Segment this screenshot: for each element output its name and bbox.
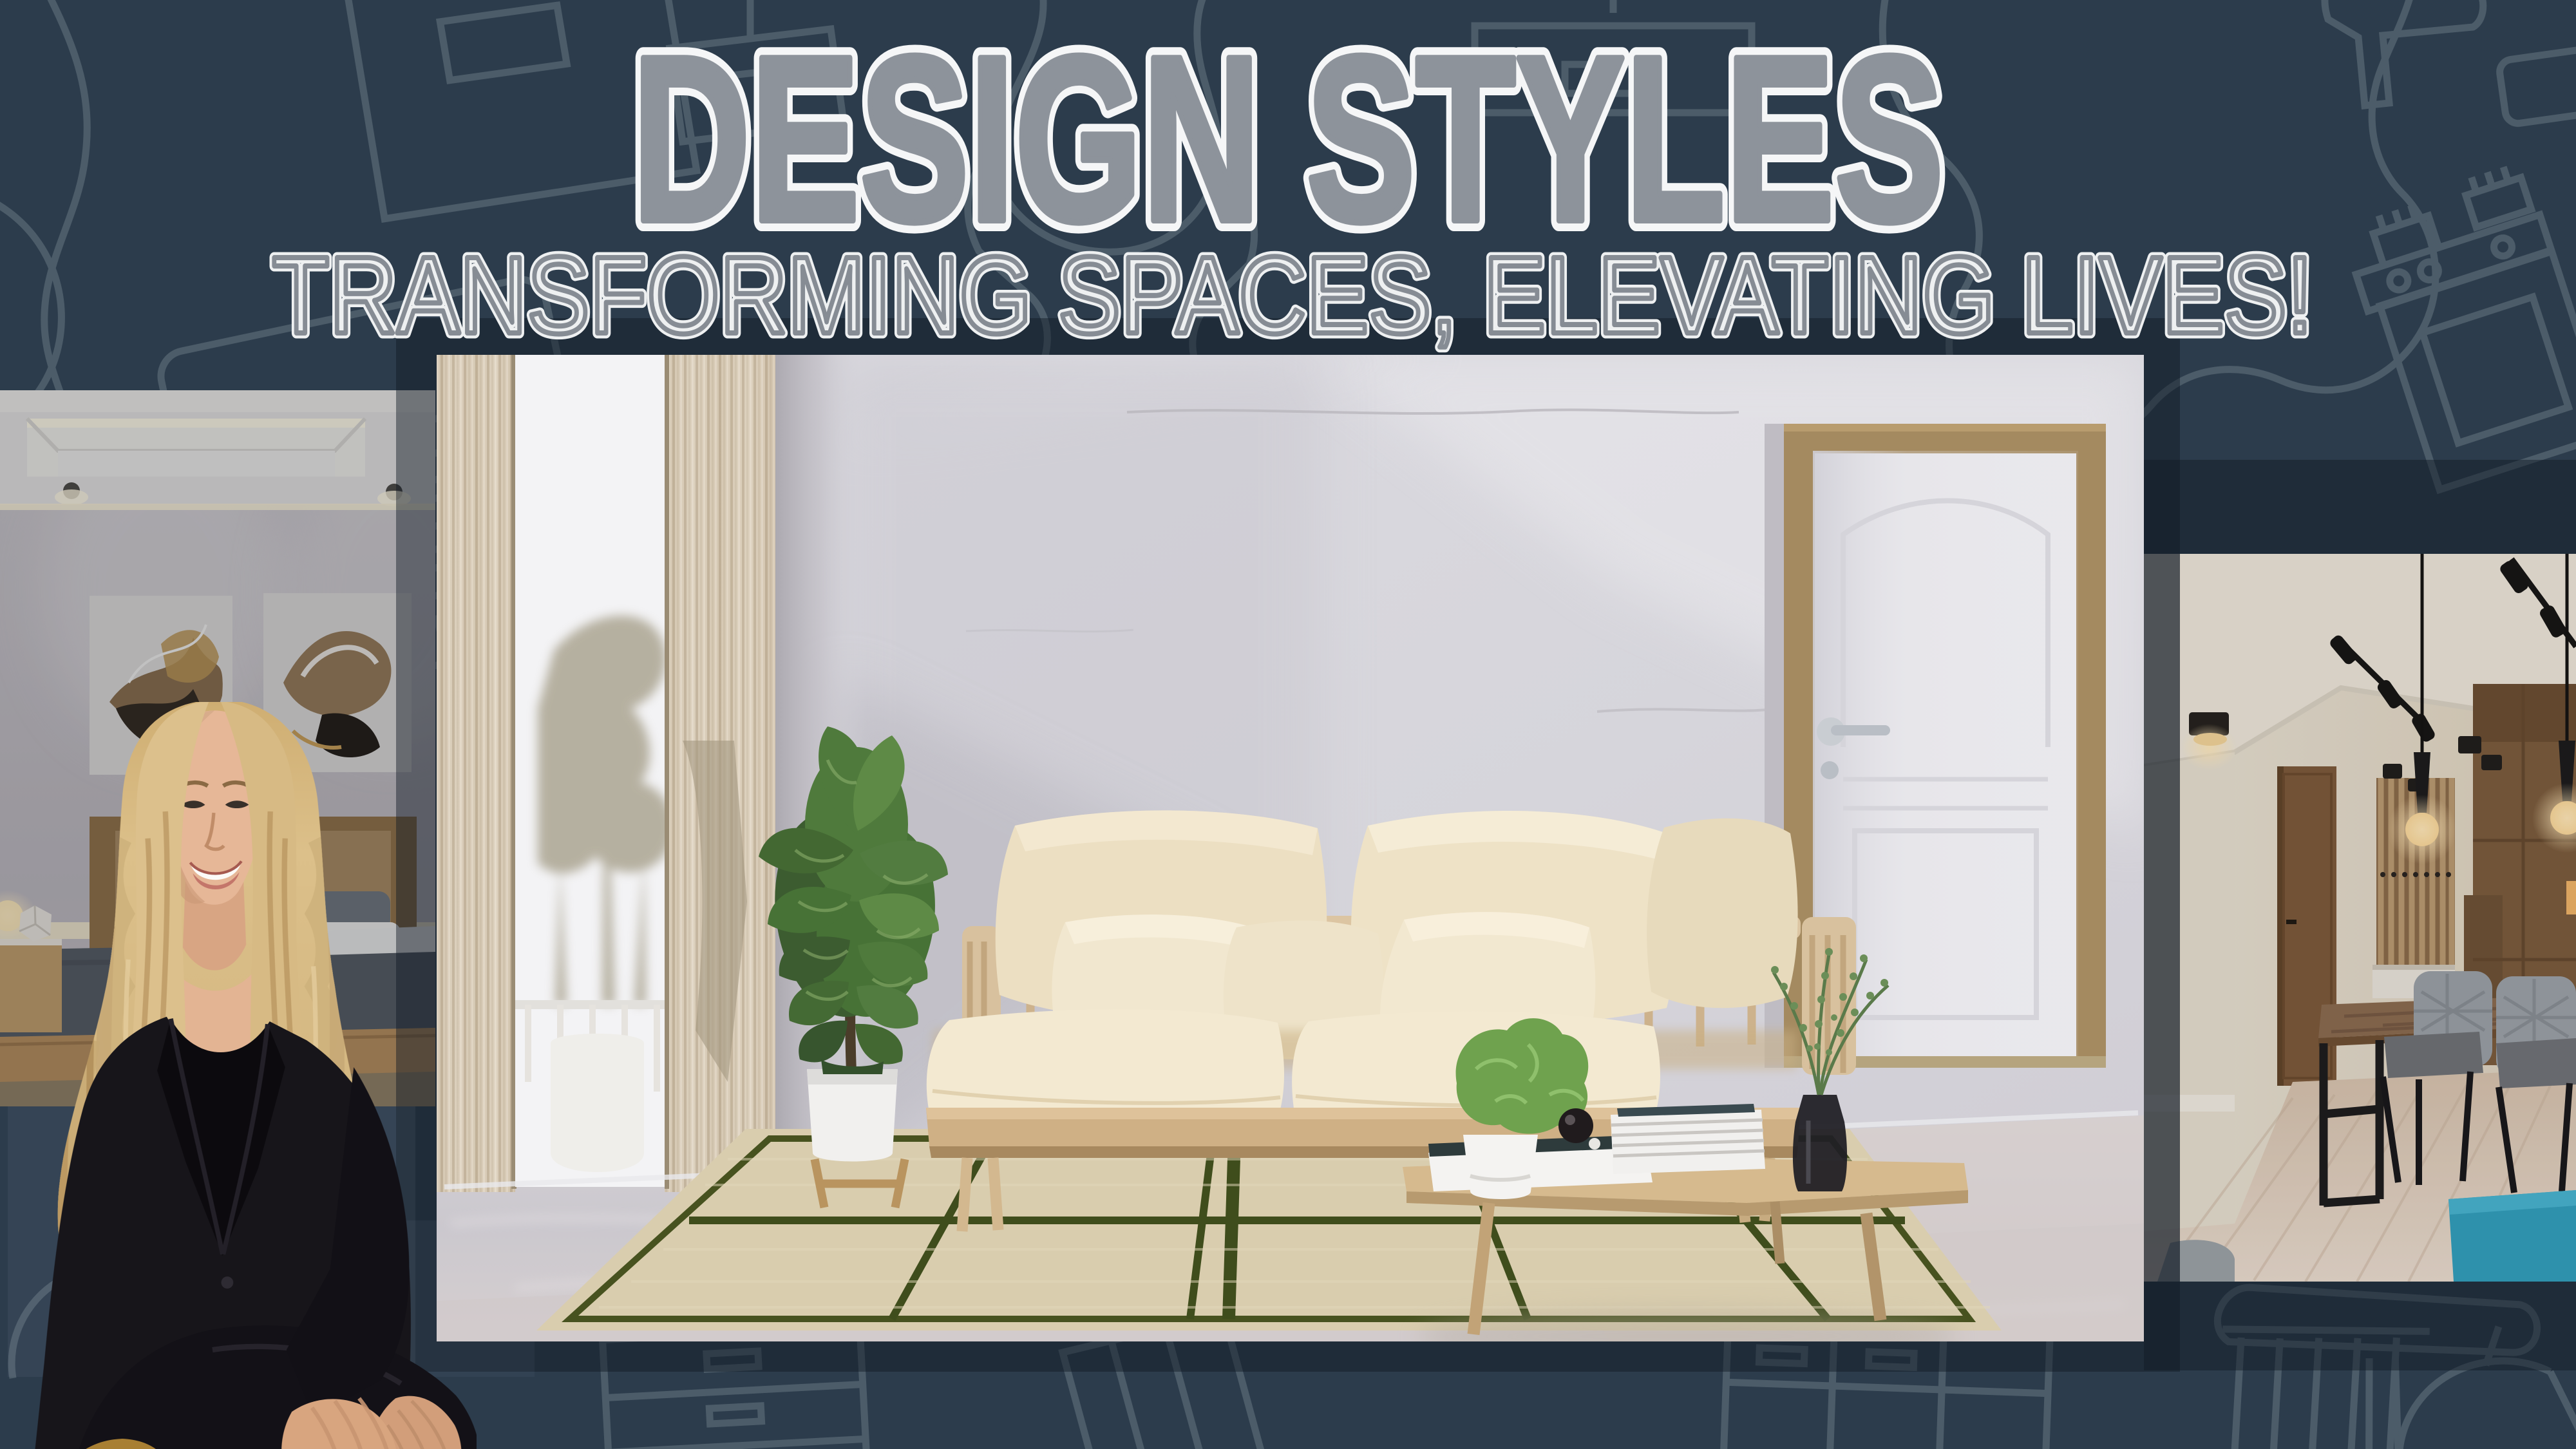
- svg-text:DESIGN STYLES: DESIGN STYLES: [632, 7, 1944, 270]
- svg-text:TRANSFORMING SPACES, ELEVATING: TRANSFORMING SPACES, ELEVATING LIVES!: [272, 234, 2313, 357]
